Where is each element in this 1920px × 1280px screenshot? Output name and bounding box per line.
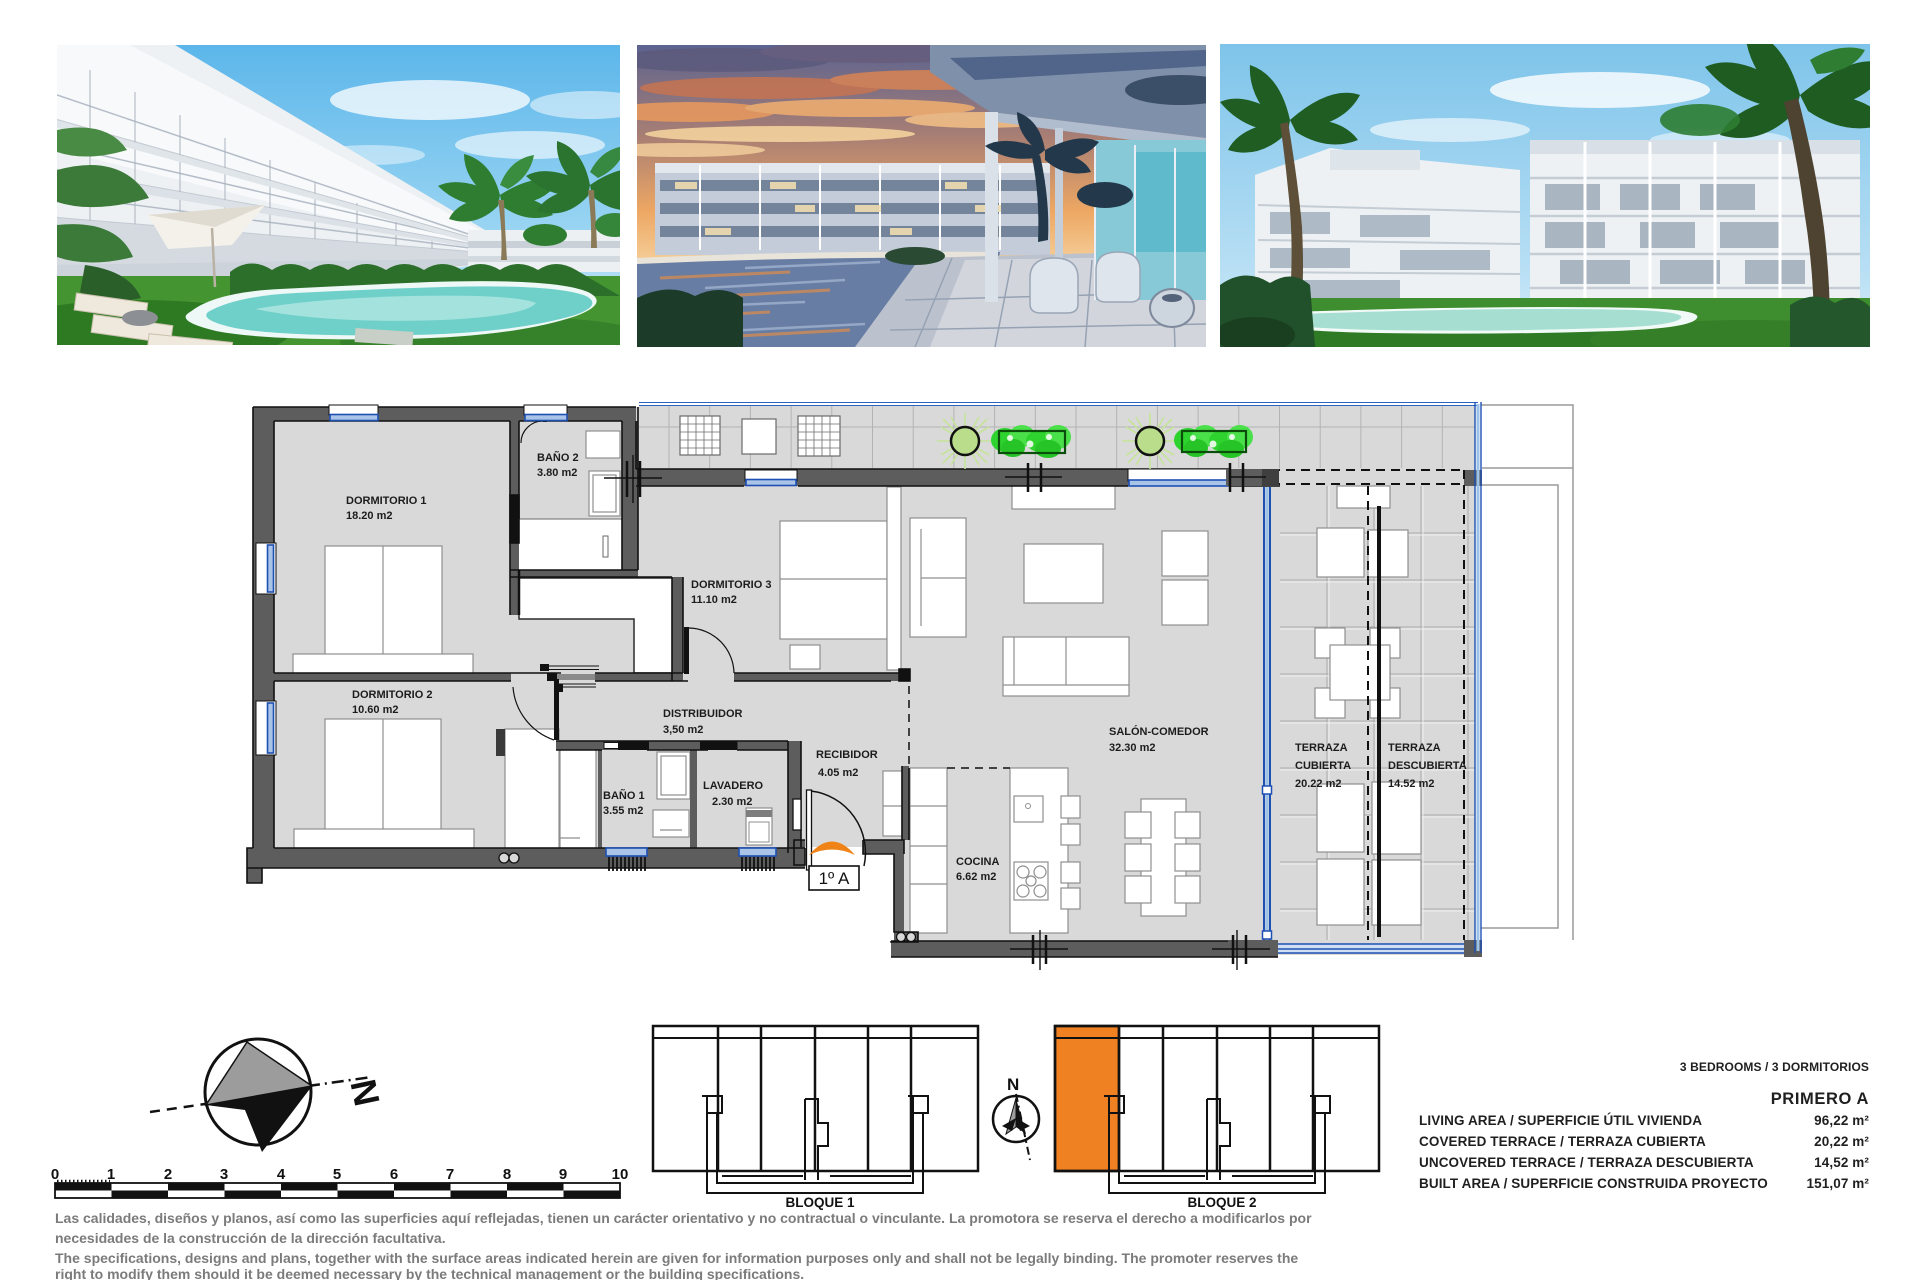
svg-text:UNCOVERED TERRACE / TERRAZA DE: UNCOVERED TERRACE / TERRAZA DESCUBIERTA	[1419, 1155, 1754, 1170]
svg-text:3,50 m2: 3,50 m2	[663, 724, 703, 736]
svg-text:2: 2	[164, 1166, 172, 1183]
svg-text:32.30 m2: 32.30 m2	[1109, 742, 1155, 754]
svg-text:COVERED TERRACE / TERRAZA CUBI: COVERED TERRACE / TERRAZA CUBIERTA	[1419, 1134, 1706, 1149]
svg-text:necesidades de la construcción: necesidades de la construcción de la dir…	[55, 1230, 446, 1246]
svg-text:4.05 m2: 4.05 m2	[818, 767, 858, 779]
svg-text:14.52 m2: 14.52 m2	[1388, 778, 1434, 790]
svg-text:BUILT AREA / SUPERFICIE CONSTR: BUILT AREA / SUPERFICIE CONSTRUIDA PROYE…	[1419, 1176, 1768, 1191]
svg-text:LIVING AREA / SUPERFICIE ÚTIL: LIVING AREA / SUPERFICIE ÚTIL VIVIENDA	[1419, 1113, 1702, 1128]
svg-text:8: 8	[503, 1166, 511, 1183]
svg-text:The specifications, designs an: The specifications, designs and plans, t…	[55, 1250, 1298, 1266]
svg-text:3.80 m2: 3.80 m2	[537, 467, 577, 479]
svg-text:Las calidades, diseños y plano: Las calidades, diseños y planos, así com…	[55, 1210, 1312, 1226]
svg-text:CUBIERTA: CUBIERTA	[1295, 760, 1351, 772]
svg-text:7: 7	[446, 1166, 454, 1183]
svg-text:right to modify them should it: right to modify them should it be deemed…	[55, 1266, 804, 1280]
svg-text:1º A: 1º A	[819, 869, 850, 888]
svg-text:3.55 m2: 3.55 m2	[603, 805, 643, 817]
svg-text:11.10 m2: 11.10 m2	[691, 594, 737, 606]
svg-text:COCINA: COCINA	[956, 856, 999, 868]
svg-text:10: 10	[612, 1166, 629, 1183]
svg-text:2.30 m2: 2.30 m2	[712, 796, 752, 808]
svg-text:BLOQUE 1: BLOQUE 1	[785, 1195, 855, 1210]
svg-text:3: 3	[220, 1166, 228, 1183]
svg-text:BAÑO 1: BAÑO 1	[603, 789, 645, 802]
svg-text:DORMITORIO 2: DORMITORIO 2	[352, 689, 432, 701]
svg-text:BLOQUE 2: BLOQUE 2	[1187, 1195, 1256, 1210]
svg-text:1: 1	[107, 1166, 115, 1183]
svg-text:TERRAZA: TERRAZA	[1388, 742, 1441, 754]
svg-text:BAÑO 2: BAÑO 2	[537, 451, 579, 464]
svg-text:DORMITORIO 1: DORMITORIO 1	[346, 495, 426, 507]
svg-text:5: 5	[333, 1166, 341, 1183]
svg-text:14,52 m²: 14,52 m²	[1814, 1155, 1869, 1170]
svg-text:151,07 m²: 151,07 m²	[1807, 1176, 1870, 1191]
svg-text:9: 9	[559, 1166, 567, 1183]
svg-text:DISTRIBUIDOR: DISTRIBUIDOR	[663, 708, 743, 720]
svg-text:DESCUBIERTA: DESCUBIERTA	[1388, 760, 1467, 772]
svg-text:N: N	[1007, 1075, 1019, 1094]
svg-text:4: 4	[277, 1166, 286, 1183]
svg-text:RECIBIDOR: RECIBIDOR	[816, 749, 878, 761]
svg-text:20.22 m2: 20.22 m2	[1295, 778, 1341, 790]
svg-text:6.62 m2: 6.62 m2	[956, 871, 996, 883]
svg-text:18.20 m2: 18.20 m2	[346, 510, 392, 522]
svg-text:20,22 m²: 20,22 m²	[1814, 1134, 1869, 1149]
svg-text:10.60 m2: 10.60 m2	[352, 704, 398, 716]
svg-text:DORMITORIO 3: DORMITORIO 3	[691, 579, 771, 591]
svg-text:3 BEDROOMS / 3 DORMITORIOS: 3 BEDROOMS / 3 DORMITORIOS	[1680, 1060, 1869, 1074]
svg-text:6: 6	[390, 1166, 398, 1183]
svg-text:SALÓN-COMEDOR: SALÓN-COMEDOR	[1109, 725, 1209, 738]
svg-text:96,22 m²: 96,22 m²	[1814, 1113, 1869, 1128]
svg-text:LAVADERO: LAVADERO	[703, 780, 764, 792]
svg-text:PRIMERO A: PRIMERO A	[1771, 1090, 1869, 1108]
svg-text:TERRAZA: TERRAZA	[1295, 742, 1348, 754]
